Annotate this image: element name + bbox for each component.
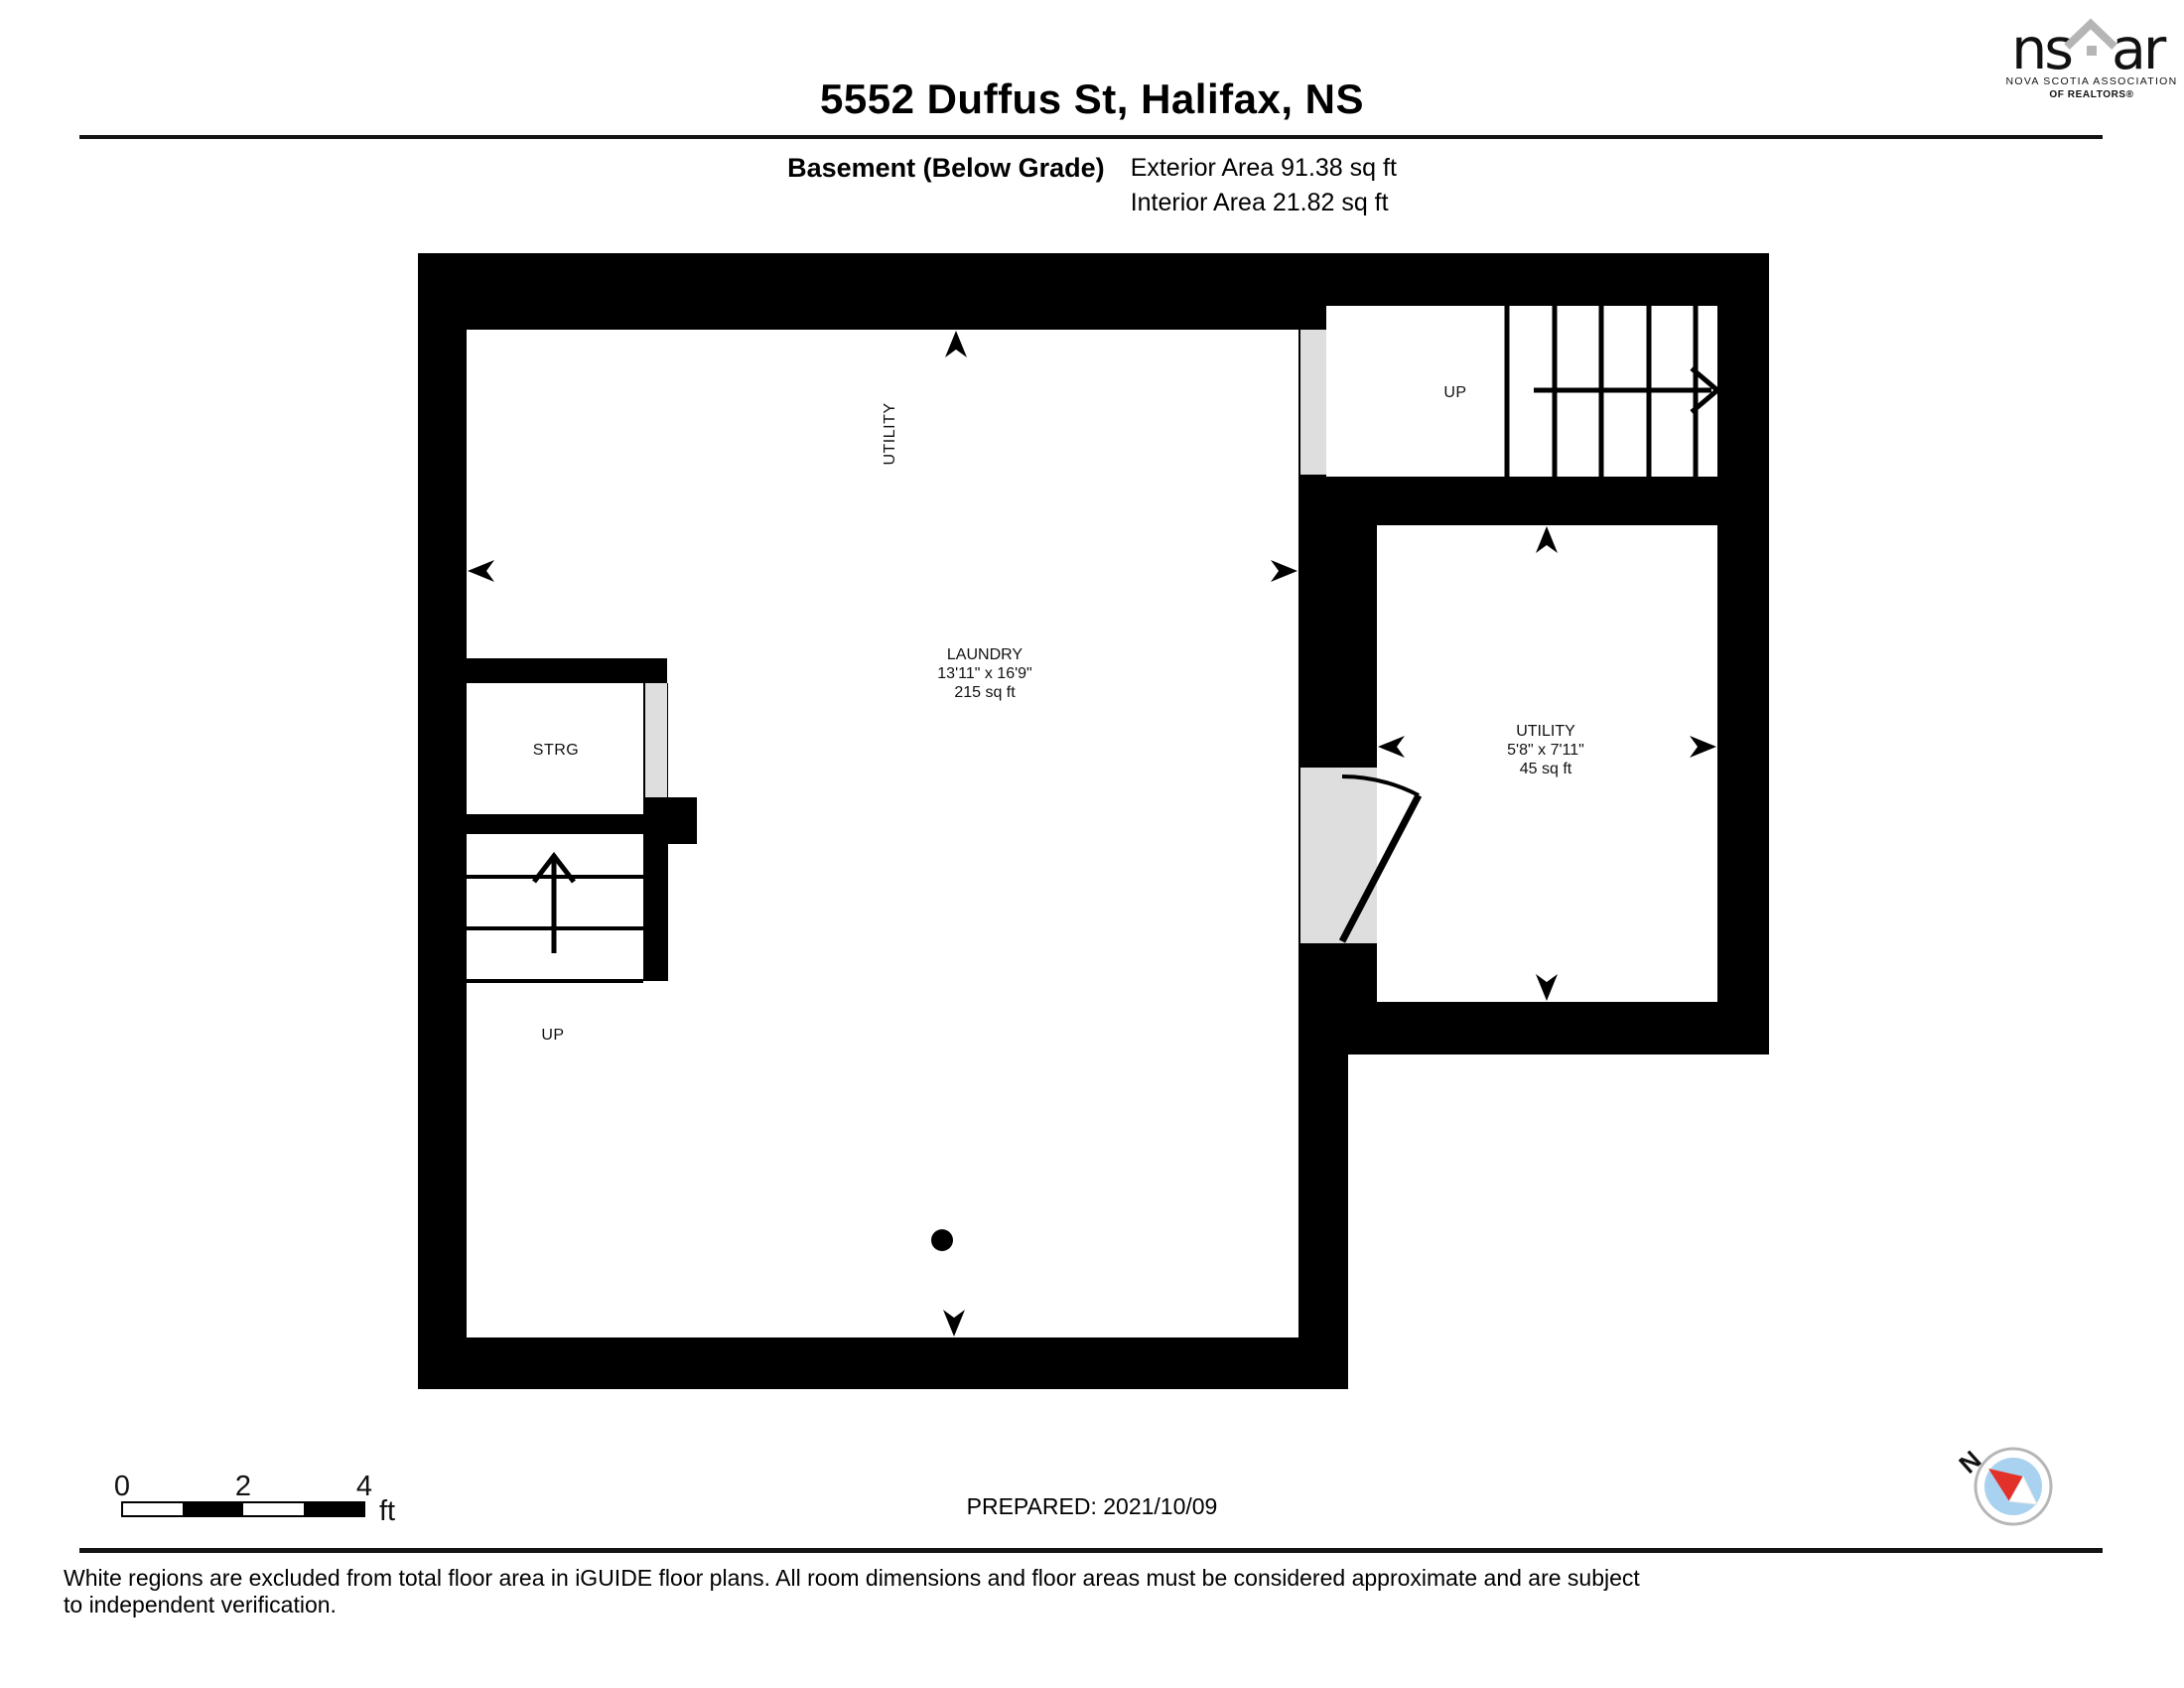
logo-subline2: OF REALTORS® bbox=[2049, 89, 2133, 100]
footer-divider bbox=[79, 1548, 2103, 1553]
logo-text-right: ar bbox=[2112, 17, 2167, 82]
page-title: 5552 Duffus St, Halifax, NS bbox=[0, 75, 2184, 123]
wall-stub bbox=[643, 797, 697, 844]
laundry-area: 215 sq ft bbox=[954, 684, 1016, 701]
utility-name: UTILITY bbox=[1516, 723, 1575, 740]
logo-subline1: NOVA SCOTIA ASSOCIATION bbox=[2005, 75, 2177, 87]
storage-label: STRG bbox=[533, 742, 579, 759]
utility-zone-label: UTILITY bbox=[882, 402, 898, 465]
floor-plan-drawing: UTILITY LAUNDRY 13'11" x 16'9" 215 sq ft… bbox=[397, 238, 1787, 1410]
header-divider bbox=[79, 135, 2103, 139]
plan-subtitle: Basement (Below Grade) Exterior Area 91.… bbox=[0, 152, 2184, 221]
logo-house-roof-icon bbox=[2067, 24, 2115, 47]
utility-door-opening bbox=[1300, 768, 1377, 943]
stairs-up-label-right: UP bbox=[1443, 384, 1466, 401]
stairwell-opening bbox=[1300, 330, 1326, 475]
utility-area: 45 sq ft bbox=[1520, 761, 1572, 777]
logo-text-left: ns bbox=[2011, 17, 2071, 82]
floor-label: Basement (Below Grade) bbox=[787, 152, 1105, 184]
nsar-logo: ns ar NOVA SCOTIA ASSOCIATION OF REALTOR… bbox=[1997, 8, 2182, 109]
utility-dims: 5'8" x 7'11" bbox=[1507, 742, 1584, 759]
point-marker bbox=[931, 1229, 953, 1251]
interior-area: Interior Area 21.82 sq ft bbox=[1131, 187, 1397, 218]
laundry-name: LAUNDRY bbox=[947, 646, 1024, 663]
logo-house-window-icon bbox=[2087, 46, 2097, 56]
laundry-dims: 13'11" x 16'9" bbox=[937, 665, 1031, 682]
storage-top-wall bbox=[467, 658, 667, 683]
compass-icon: N bbox=[1941, 1423, 2090, 1538]
floor-plan-page: 5552 Duffus St, Halifax, NS ns ar NOVA S… bbox=[0, 0, 2184, 1688]
exterior-area: Exterior Area 91.38 sq ft bbox=[1131, 152, 1397, 184]
prepared-date: PREPARED: 2021/10/09 bbox=[0, 1493, 2184, 1520]
stairs-up-label-left: UP bbox=[541, 1027, 564, 1044]
disclaimer-text: White regions are excluded from total fl… bbox=[64, 1565, 1652, 1618]
storage-opening bbox=[645, 683, 667, 797]
area-summary: Exterior Area 91.38 sq ft Interior Area … bbox=[1131, 152, 1397, 221]
storage-bottom-wall bbox=[467, 814, 643, 834]
